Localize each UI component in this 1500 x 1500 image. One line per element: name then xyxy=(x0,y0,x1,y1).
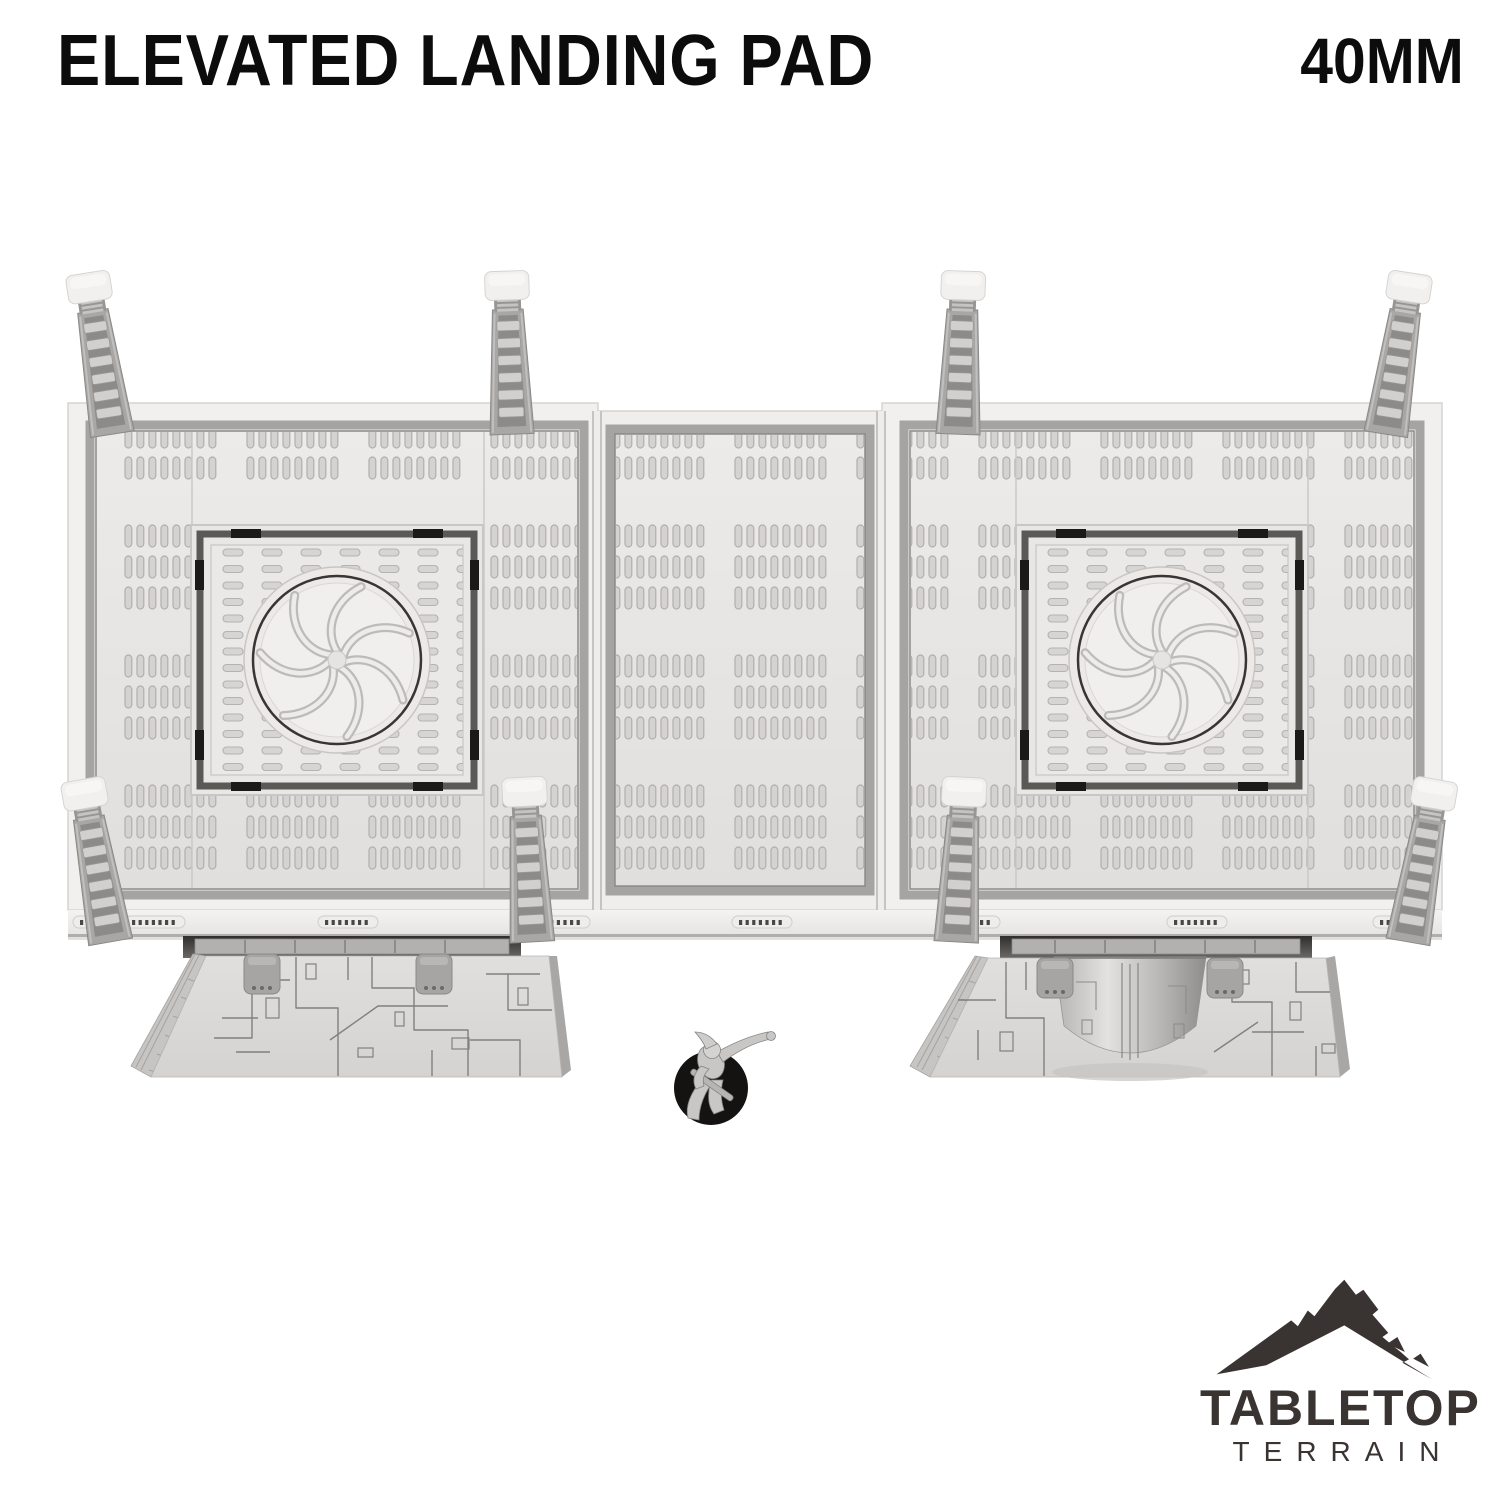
deck-fascia xyxy=(68,910,1442,940)
support-pillar-left xyxy=(131,936,571,1077)
brand-name-top: TABLETOP xyxy=(1200,1383,1472,1433)
fan-vent-right xyxy=(1016,525,1308,795)
brand-logo: TABLETOP TERRAIN xyxy=(1200,1269,1472,1468)
brand-name-bottom: TERRAIN xyxy=(1214,1437,1472,1468)
ladder-top-3 xyxy=(936,270,986,435)
ladder-top-2 xyxy=(484,270,534,435)
mountain-icon xyxy=(1202,1269,1470,1381)
product-card: ELEVATED LANDING PAD 40MM xyxy=(0,0,1500,1500)
fan-vent-left xyxy=(191,525,483,795)
miniature-figure xyxy=(674,1032,776,1126)
walkway-section xyxy=(598,411,882,910)
support-pillar-right xyxy=(910,936,1350,1081)
